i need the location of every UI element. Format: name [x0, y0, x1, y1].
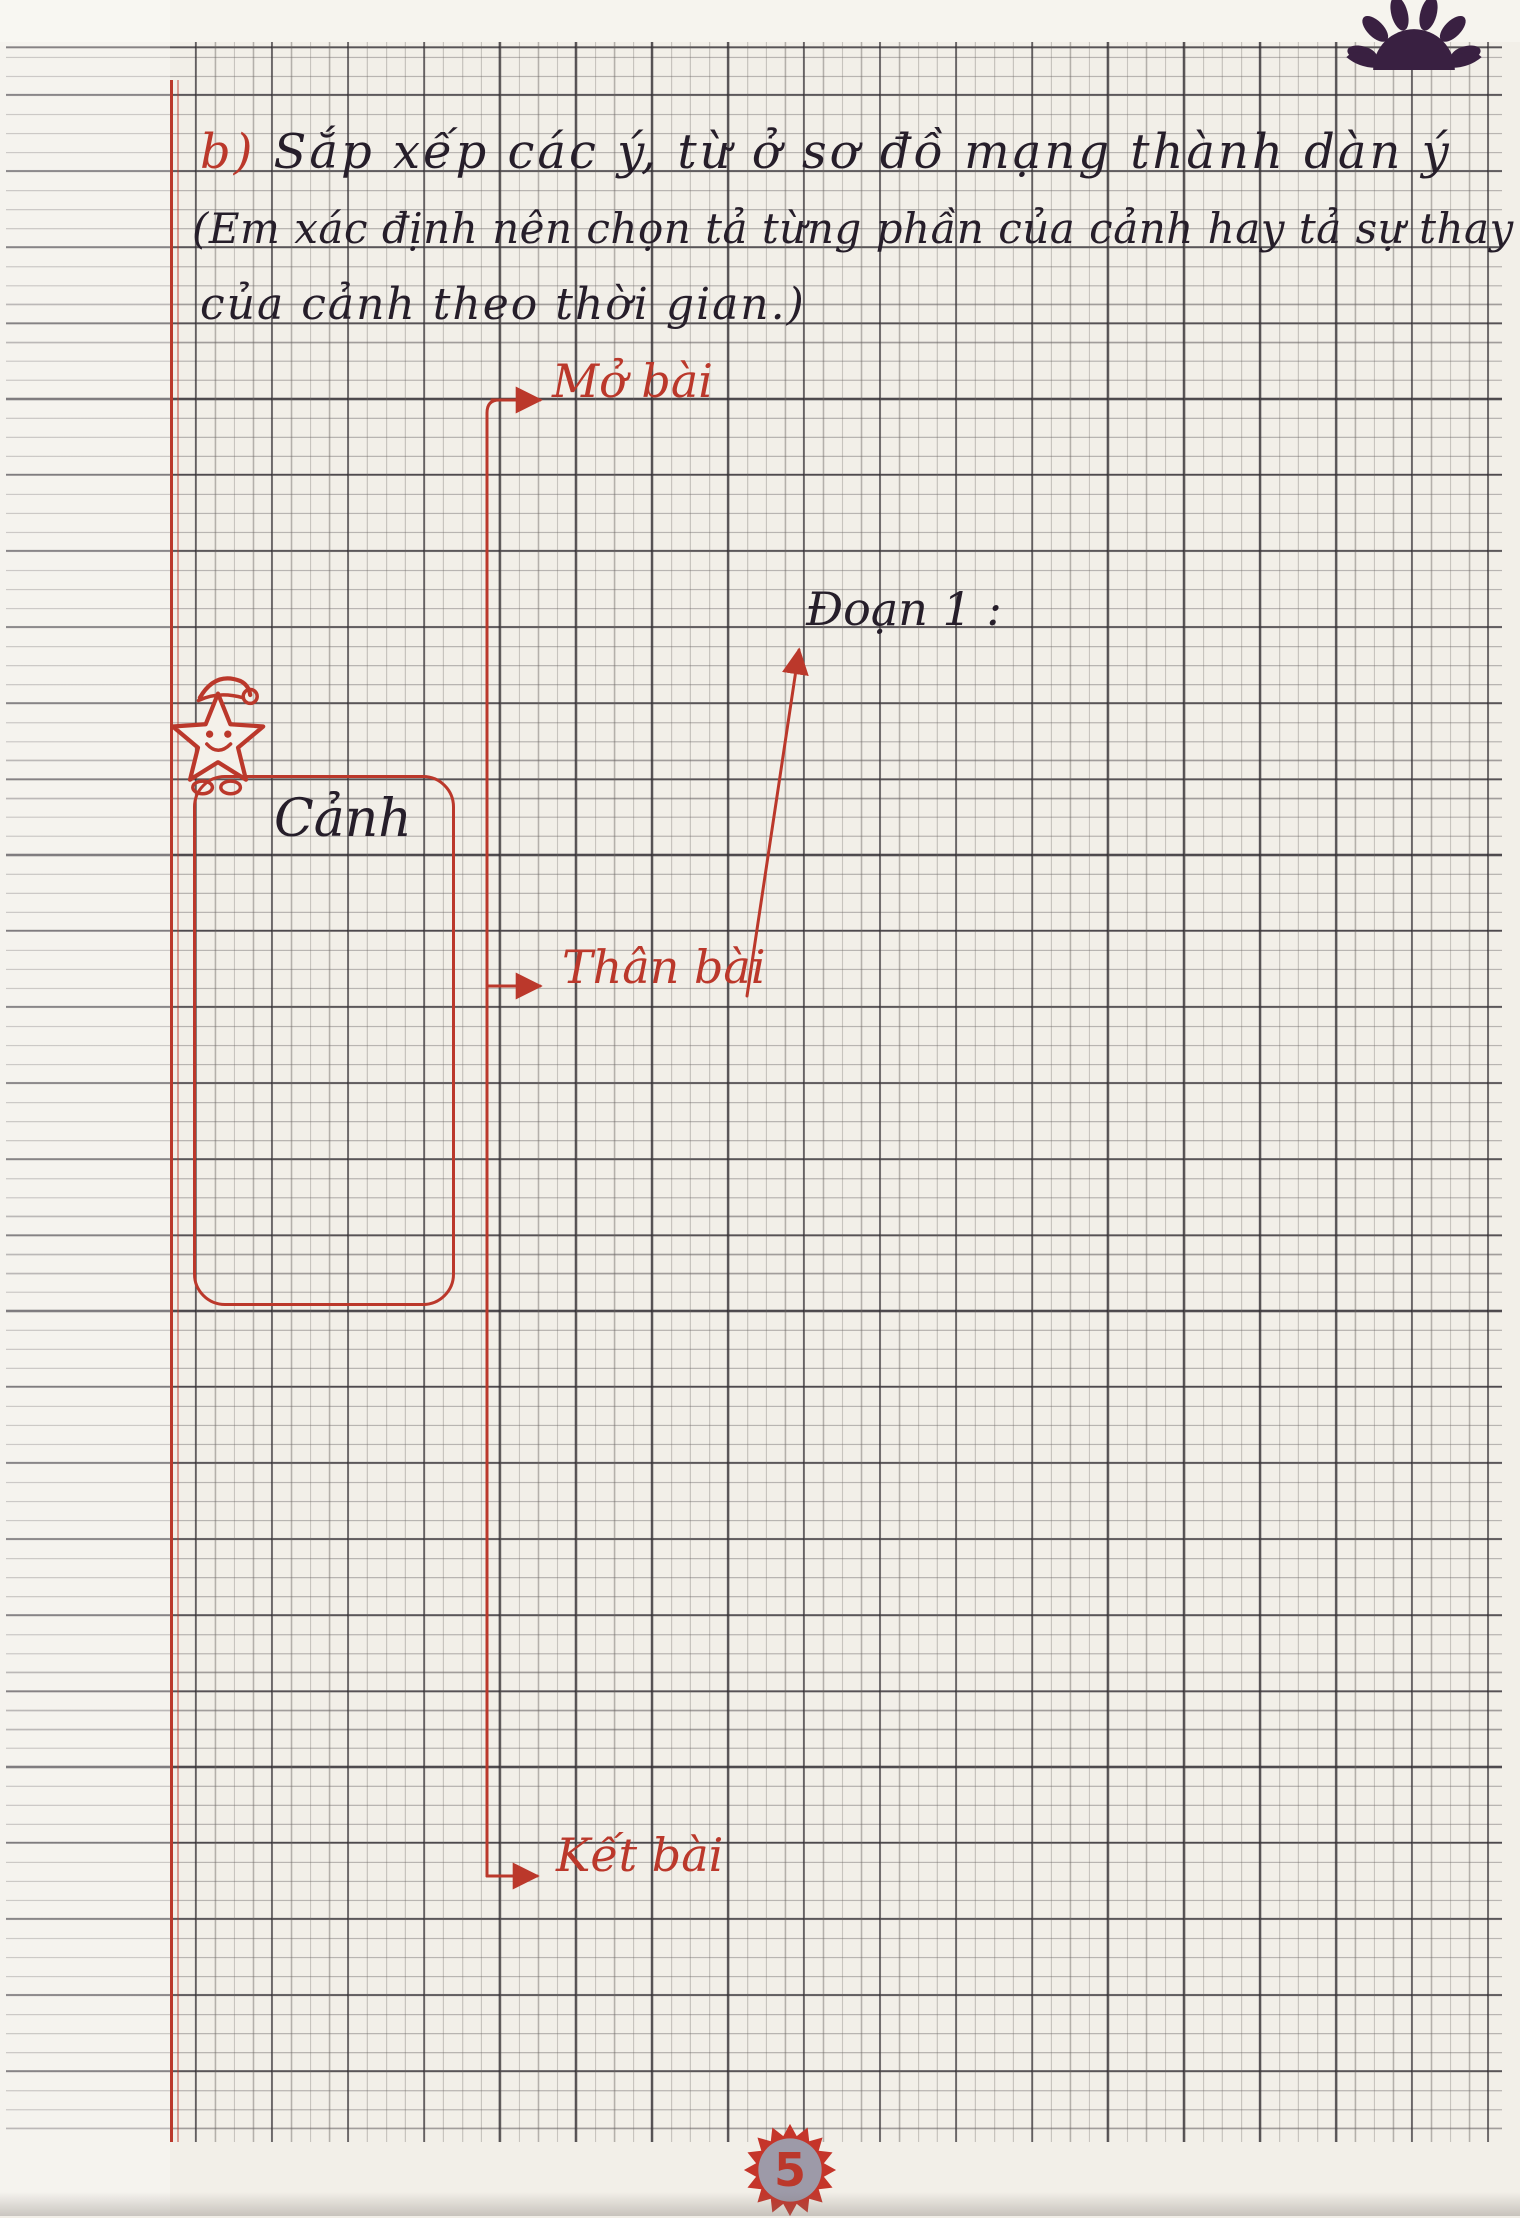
exercise-line-2: (Em xác định nên chọn tả từng phần của c… — [192, 208, 1520, 250]
label-body: Thân bài — [562, 944, 766, 990]
paper-top-margin — [0, 0, 1520, 42]
exercise-marker: b) — [200, 124, 255, 180]
exercise-line-1: b)Sắp xếp các ý, từ ở sơ đồ mạng thành d… — [200, 128, 1452, 176]
notebook-page: b)Sắp xếp các ý, từ ở sơ đồ mạng thành d… — [0, 0, 1520, 2216]
publisher-logo-icon — [1338, 0, 1490, 70]
red-margin-line-secondary — [177, 80, 179, 2142]
page-bottom-shadow — [0, 2192, 1520, 2216]
left-margin-zone — [0, 0, 170, 2216]
label-closing: Kết bài — [556, 1832, 723, 1878]
star-mascot-icon — [148, 660, 288, 800]
exercise-line-3: của cảnh theo thời gian.) — [200, 283, 806, 327]
red-margin-line — [170, 80, 173, 2142]
label-opening: Mở bài — [552, 358, 713, 404]
label-paragraph1: Đoạn 1 : — [806, 586, 1002, 632]
scene-box — [193, 775, 455, 1306]
scene-box-label: Cảnh — [274, 793, 412, 845]
exercise-line-1-text: Sắp xếp các ý, từ ở sơ đồ mạng thành dàn… — [273, 124, 1451, 180]
